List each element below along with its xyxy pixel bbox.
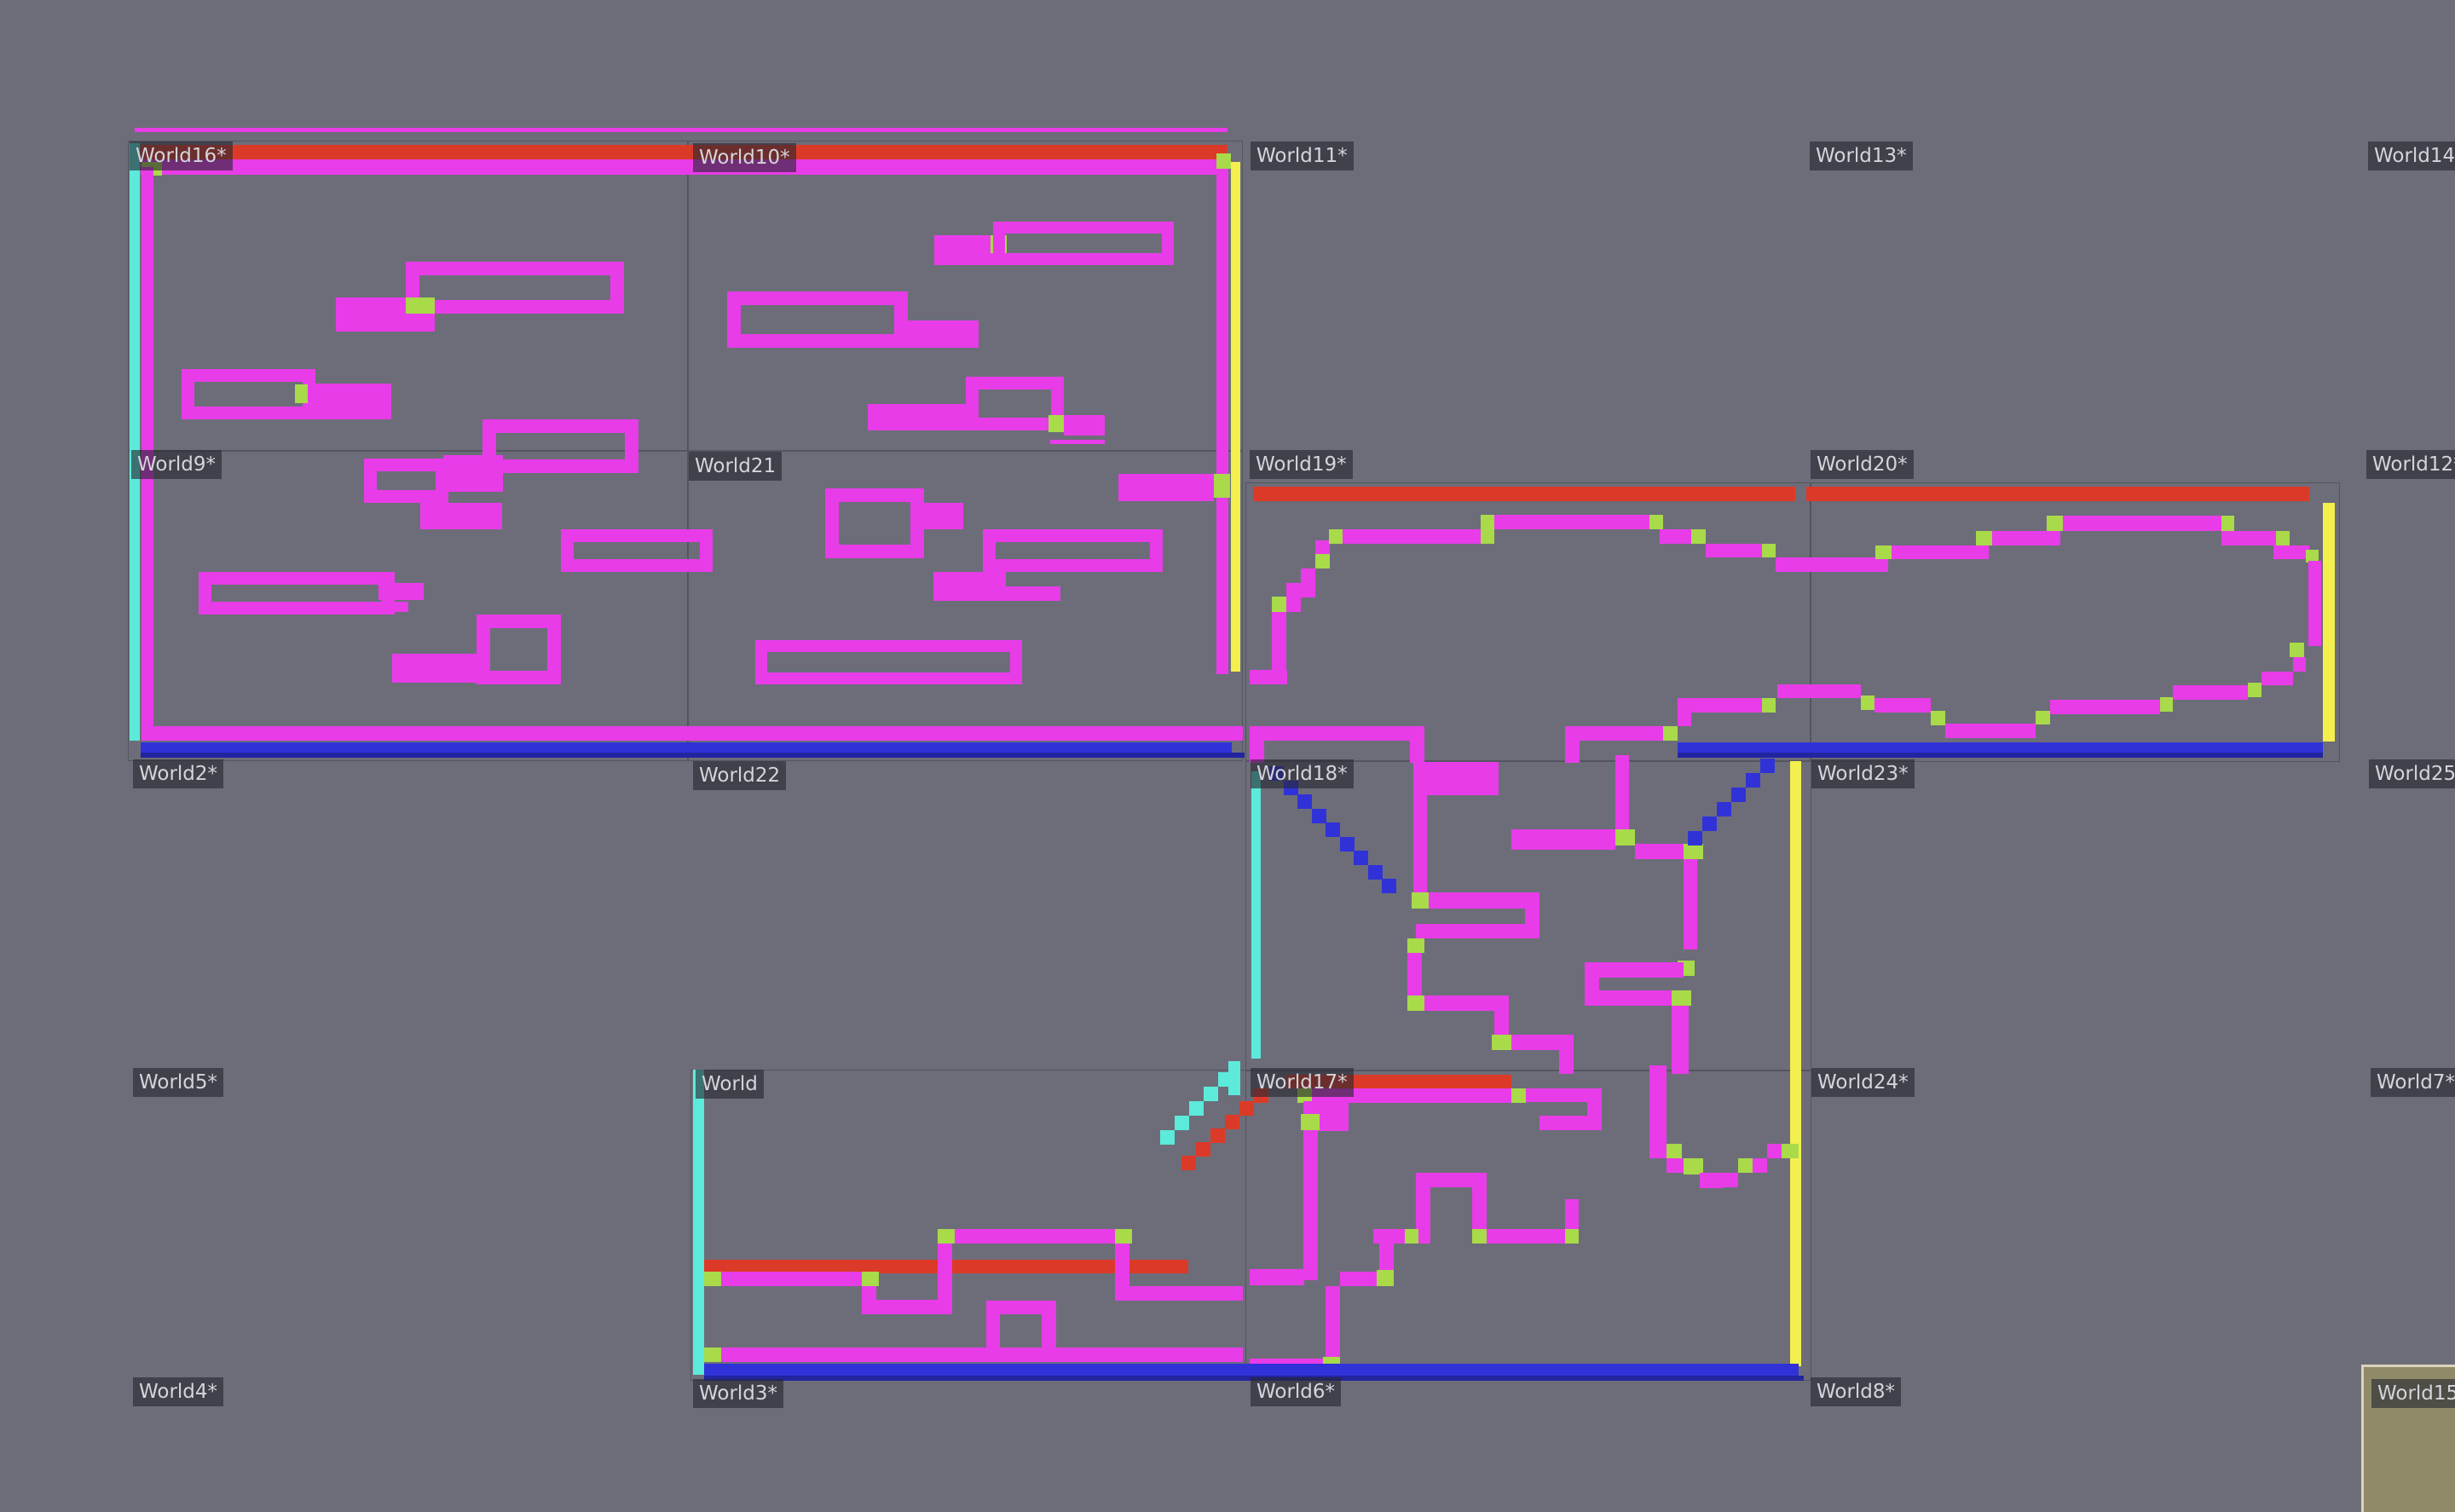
map-label[interactable]: World6* <box>1251 1377 1341 1406</box>
node-tile <box>1377 1270 1394 1286</box>
wall-tile <box>1667 1158 1684 1173</box>
map-label[interactable]: World7* <box>2371 1068 2455 1097</box>
node-tile <box>1481 515 1494 544</box>
wall-tile <box>1379 1244 1394 1272</box>
water-tile <box>1717 802 1731 817</box>
node-tile <box>1663 726 1678 741</box>
wall-tile <box>1945 724 2036 738</box>
node-tile <box>1691 529 1706 544</box>
node-tile <box>1667 1144 1682 1158</box>
wall-tile <box>1216 169 1228 674</box>
wall-tile <box>141 159 1218 175</box>
water-tile <box>1368 865 1383 880</box>
node-tile <box>2047 516 2063 531</box>
map-label[interactable]: World13* <box>1810 141 1913 170</box>
hazard-tile <box>1225 1115 1239 1129</box>
wall-tile <box>862 1300 952 1314</box>
hazard-tile <box>141 145 1227 159</box>
node-tile <box>1875 545 1892 559</box>
hazard-tile <box>1210 1128 1225 1143</box>
cyan-border-tile <box>693 1070 704 1375</box>
node-tile <box>1407 995 1424 1011</box>
water-tile <box>704 1364 1799 1376</box>
water-tile <box>1688 831 1702 845</box>
wall-tile <box>1315 540 1330 554</box>
wall-tile <box>1272 612 1286 684</box>
wall-tile <box>1129 1286 1243 1301</box>
wall-tile <box>1118 474 1214 501</box>
wall-tile <box>1776 557 1888 572</box>
wall-tile <box>955 1229 1115 1244</box>
wall-tile <box>1416 1173 1487 1187</box>
node-tile <box>2221 516 2234 531</box>
map-label[interactable]: World8* <box>1811 1377 1901 1406</box>
hazard-tile <box>1181 1156 1196 1170</box>
cyan-border-tile <box>1160 1130 1175 1145</box>
node-tile <box>1214 474 1230 498</box>
wall-tile <box>1429 892 1539 909</box>
wall-tile <box>1684 859 1697 949</box>
wall-outline-tile <box>406 262 624 314</box>
map-label[interactable]: World22 <box>693 761 786 790</box>
map-label[interactable]: World12* <box>2366 450 2455 479</box>
map-label[interactable]: World18* <box>1251 759 1354 788</box>
node-tile <box>1684 844 1703 859</box>
wall-outline-tile <box>825 488 924 558</box>
map-label[interactable]: World20* <box>1811 450 1914 479</box>
map-label[interactable]: World5* <box>133 1068 223 1097</box>
wall-outline-tile <box>364 459 448 503</box>
wall-tile <box>1526 1088 1602 1102</box>
wall-tile <box>1487 1229 1565 1244</box>
wall-tile <box>1064 415 1105 436</box>
hazard-tile <box>1253 487 1795 501</box>
node-tile <box>1492 1035 1511 1050</box>
wall-tile <box>1494 1011 1509 1035</box>
wall-tile <box>895 320 979 348</box>
map-label[interactable]: World24* <box>1811 1068 1915 1097</box>
node-tile <box>1115 1229 1132 1244</box>
wall-tile <box>1494 515 1649 529</box>
wall-tile <box>1413 795 1427 892</box>
wall-outline-tile <box>727 291 908 348</box>
wall-tile <box>986 1301 1056 1314</box>
wall-tile <box>1585 978 1599 1006</box>
wall-tile <box>1767 1144 1782 1158</box>
map-label[interactable]: World14* <box>2368 141 2455 170</box>
water-tile <box>1702 817 1717 831</box>
wall-tile <box>1413 762 1499 795</box>
wall-tile <box>1700 1173 1724 1188</box>
wall-tile <box>308 384 391 419</box>
map-label[interactable]: World17* <box>1251 1068 1354 1097</box>
yellow-border-tile <box>1790 761 1801 1366</box>
node-tile <box>1407 938 1424 953</box>
map-outline[interactable] <box>690 1070 1246 1381</box>
wall-tile <box>1992 531 2060 545</box>
wall-tile <box>721 1272 863 1286</box>
node-tile <box>295 384 308 403</box>
wall-tile <box>933 572 1006 601</box>
node-tile <box>1762 698 1776 713</box>
wall-tile <box>1678 698 1691 726</box>
hazard-tile <box>1239 1101 1254 1116</box>
wall-outline-tile <box>755 640 1022 684</box>
wall-tile <box>2308 561 2321 646</box>
navy-line <box>141 753 1245 758</box>
node-tile <box>406 297 435 314</box>
cyan-border-tile <box>1175 1116 1189 1130</box>
node-tile <box>2248 683 2261 697</box>
cyan-border-tile <box>1189 1101 1204 1116</box>
map-label[interactable]: World <box>696 1070 764 1099</box>
world-editor-canvas[interactable]: World16*World10*World11*World13*World14*… <box>0 0 2455 1512</box>
wall-tile <box>1691 698 1762 713</box>
water-tile <box>1678 742 2323 753</box>
map-label[interactable]: World3* <box>693 1379 783 1408</box>
wall-tile <box>1373 1229 1405 1244</box>
wall-tile <box>443 455 503 492</box>
node-tile <box>2160 697 2173 712</box>
node-tile <box>1672 990 1691 1006</box>
wall-tile <box>1649 1144 1667 1158</box>
wall-tile <box>1340 1272 1377 1286</box>
node-tile <box>1301 1114 1320 1130</box>
wall-outline-tile <box>482 419 638 473</box>
node-tile <box>862 1272 879 1286</box>
water-tile <box>1731 788 1746 802</box>
wall-tile <box>1565 741 1580 763</box>
node-tile <box>1931 711 1945 725</box>
map-label[interactable]: World2* <box>133 759 223 788</box>
node-tile <box>1976 531 1992 545</box>
wall-tile <box>388 602 408 612</box>
wall-tile <box>868 404 979 430</box>
wall-tile <box>420 503 502 529</box>
water-tile <box>1340 837 1355 851</box>
cyan-border-tile <box>1228 1061 1240 1095</box>
water-tile <box>1326 822 1340 837</box>
water-tile <box>1297 794 1312 809</box>
wall-tile <box>392 654 477 683</box>
yellow-border-tile <box>2323 503 2335 742</box>
water-tile <box>1312 809 1326 823</box>
wall-tile <box>1777 684 1861 698</box>
wall-tile <box>1424 995 1509 1011</box>
wall-tile <box>378 583 424 600</box>
wall-tile <box>142 167 153 726</box>
node-tile <box>2036 711 2050 724</box>
map-label[interactable]: World25* <box>2369 759 2455 788</box>
wall-tile <box>1672 1006 1689 1074</box>
wall-tile <box>2273 545 2309 559</box>
node-tile <box>1216 153 1231 169</box>
wall-tile <box>1585 962 1684 978</box>
map-label[interactable]: World4* <box>133 1377 223 1406</box>
wall-tile <box>1565 726 1663 741</box>
wall-tile <box>1539 1116 1602 1130</box>
wall-tile <box>2050 700 2160 714</box>
wall-tile <box>142 726 1243 741</box>
wall-tile <box>2063 516 2221 531</box>
wall-tile <box>1511 829 1615 850</box>
wall-tile <box>1410 741 1424 763</box>
node-tile <box>1511 1088 1526 1103</box>
water-tile <box>1760 759 1775 773</box>
wall-outline-tile <box>983 529 1163 572</box>
node-tile <box>1405 1229 1418 1244</box>
wall-tile <box>1565 1199 1579 1229</box>
wall-tile <box>986 1314 1000 1348</box>
node-tile <box>2290 643 2304 657</box>
wall-tile <box>938 1244 952 1300</box>
wall-tile <box>2293 657 2306 672</box>
node-tile <box>1782 1144 1799 1158</box>
wall-tile <box>1004 586 1060 601</box>
node-tile <box>1315 554 1330 568</box>
node-tile <box>1472 1229 1487 1244</box>
wall-outline-tile <box>561 529 713 572</box>
wall-tile <box>1050 440 1105 444</box>
map-label[interactable]: World9* <box>131 450 222 479</box>
wall-tile <box>1115 1244 1129 1301</box>
node-tile <box>1738 1158 1753 1173</box>
node-tile <box>704 1348 721 1362</box>
wall-tile <box>1874 698 1931 713</box>
node-tile <box>1412 892 1429 909</box>
wall-tile <box>1416 924 1539 938</box>
wall-outline-tile <box>993 222 1174 265</box>
wall-tile <box>1318 1101 1349 1131</box>
hazard-tile <box>1196 1142 1210 1157</box>
wall-tile <box>1635 844 1684 859</box>
node-tile <box>1565 1229 1579 1244</box>
node-tile <box>1615 829 1635 845</box>
wall-tile <box>1559 1050 1574 1074</box>
water-tile <box>1746 773 1760 788</box>
wall-tile <box>924 503 963 529</box>
cyan-border-tile <box>1251 771 1261 1059</box>
wall-tile <box>1892 545 1989 559</box>
wall-tile <box>1511 1035 1574 1050</box>
wall-tile <box>1525 909 1539 924</box>
wall-tile <box>1286 583 1301 612</box>
wall-tile <box>1343 529 1481 544</box>
water-tile <box>141 742 1232 753</box>
wall-tile <box>135 128 1227 132</box>
map-label[interactable]: World11* <box>1251 141 1354 170</box>
node-tile <box>704 1272 721 1286</box>
water-tile <box>1382 879 1396 893</box>
cyan-border-tile <box>1204 1087 1218 1101</box>
node-tile <box>2276 531 2290 545</box>
wall-tile <box>1407 953 1422 995</box>
wall-tile <box>1599 990 1672 1006</box>
map-label[interactable]: World21 <box>689 452 782 481</box>
wall-tile <box>1301 568 1315 597</box>
wall-tile <box>1660 529 1691 544</box>
node-tile <box>1762 544 1776 557</box>
wall-tile <box>2173 685 2248 700</box>
map-label[interactable]: World19* <box>1250 450 1353 479</box>
wall-tile <box>1724 1173 1738 1187</box>
wall-tile <box>2261 672 2293 685</box>
map-label[interactable]: World15* <box>2371 1379 2455 1408</box>
hazard-tile <box>1806 487 2309 501</box>
wall-tile <box>1326 1286 1340 1359</box>
cyan-border-tile <box>130 143 140 741</box>
node-tile <box>1048 415 1066 432</box>
map-label[interactable]: World23* <box>1811 759 1915 788</box>
water-tile <box>1354 851 1368 865</box>
map-label[interactable]: World16* <box>130 141 233 170</box>
wall-tile <box>1250 1269 1304 1285</box>
node-tile <box>1861 695 1874 710</box>
node-tile <box>938 1229 955 1244</box>
wall-tile <box>2221 531 2279 545</box>
wall-tile <box>1615 755 1629 829</box>
yellow-border-tile <box>1231 162 1240 672</box>
wall-tile <box>1649 1065 1667 1144</box>
wall-tile <box>1042 1314 1056 1348</box>
node-tile <box>1649 515 1663 529</box>
wall-tile <box>1706 544 1762 557</box>
wall-outline-tile <box>199 572 395 615</box>
navy-line <box>1678 753 2323 758</box>
wall-tile <box>934 235 993 265</box>
wall-tile <box>1753 1158 1767 1173</box>
wall-outline-tile <box>477 615 561 684</box>
node-tile <box>1329 529 1343 544</box>
wall-tile <box>704 1348 1243 1362</box>
wall-tile <box>1250 726 1424 741</box>
map-label[interactable]: World10* <box>693 143 796 172</box>
node-tile <box>1272 597 1286 612</box>
